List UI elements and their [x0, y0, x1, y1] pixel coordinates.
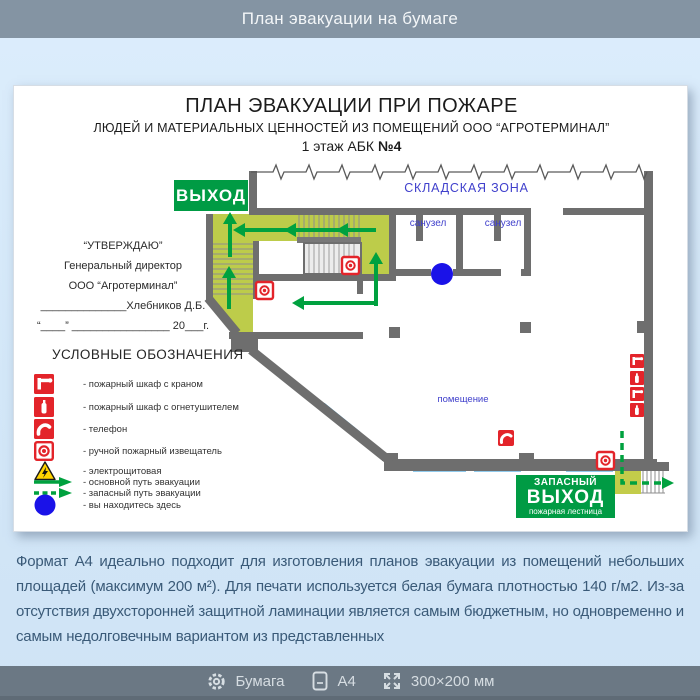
floor-plan-drawing	[169, 156, 689, 524]
spec-dimensions-label: 300×200 мм	[411, 673, 495, 690]
document-subtitle: ЛЮДЕЙ И МАТЕРИАЛЬНЫХ ЦЕННОСТЕЙ ИЗ ПОМЕЩЕ…	[14, 121, 689, 135]
exit-sign: ВЫХОД	[174, 180, 248, 211]
legend-label: - пожарный шкаф с краном	[83, 379, 203, 390]
corridor-fill	[212, 214, 641, 494]
manual-call-point-icon	[342, 257, 359, 274]
legend-label: - запасный путь эвакуации	[83, 488, 201, 499]
footer-bar: Бумага A4 300×200 мм	[0, 666, 700, 700]
document-title-block: ПЛАН ЭВАКУАЦИИ ПРИ ПОЖАРЕ ЛЮДЕЙ И МАТЕРИ…	[14, 95, 689, 154]
dimensions-icon	[382, 671, 402, 691]
spec-material: Бумага	[206, 671, 285, 692]
emergency-exit-line3: пожарная лестница	[516, 507, 615, 517]
legend-row: - ручной пожарный извещатель	[34, 441, 56, 461]
window-strips	[277, 371, 613, 467]
legend-label: - пожарный шкаф с огнетушителем	[83, 402, 239, 413]
page-title: План эвакуации на бумаге	[242, 9, 458, 29]
fire-cabinet-extinguisher-icon	[630, 371, 644, 385]
fire-cabinet-hose-icon	[34, 374, 56, 394]
legend-row: - телефон	[34, 419, 56, 439]
you-are-here-icon	[34, 494, 56, 516]
page-icon	[311, 671, 329, 691]
spec-format-label: A4	[338, 673, 356, 690]
building-number: №4	[378, 138, 401, 154]
exit-sign-label: ВЫХОД	[176, 186, 246, 206]
fire-cabinet-hose-icon	[630, 387, 644, 401]
diagonal-wall	[251, 350, 391, 462]
floor-text: 1 этаж АБК	[302, 138, 378, 154]
spec-material-label: Бумага	[236, 673, 285, 690]
you-are-here-marker	[431, 263, 453, 285]
legend-label: - вы находитесь здесь	[83, 500, 181, 511]
fire-cabinet-hose-icon	[630, 354, 644, 368]
legend-label: - электрощитовая	[83, 466, 161, 477]
telephone-icon	[498, 430, 514, 446]
fire-cabinet-extinguisher-icon	[630, 403, 644, 417]
evacuation-plan-sheet: ПЛАН ЭВАКУАЦИИ ПРИ ПОЖАРЕ ЛЮДЕЙ И МАТЕРИ…	[13, 85, 688, 532]
telephone-icon	[34, 419, 56, 439]
emergency-exit-sign: ЗАПАСНЫЙ ВЫХОД пожарная лестница	[516, 475, 615, 518]
legend-label: - телефон	[83, 424, 127, 435]
page: { "header": { "title": "План эвакуации н…	[0, 0, 700, 700]
legend-row: - вы находитесь здесь	[34, 493, 56, 517]
document-floor-line: 1 этаж АБК №4	[14, 138, 689, 154]
fire-cabinet-extinguisher-icon	[34, 397, 56, 417]
spec-dimensions: 300×200 мм	[382, 671, 495, 691]
manual-call-point-icon	[256, 282, 273, 299]
manual-call-point-icon	[34, 441, 56, 461]
bathroom-label: санузел	[398, 218, 458, 229]
legend-title: УСЛОВНЫЕ ОБОЗНАЧЕНИЯ	[52, 347, 252, 362]
wall-break-line	[251, 165, 647, 179]
room-label: помещение	[433, 394, 493, 405]
warehouse-zone-label: СКЛАДСКАЯ ЗОНА	[399, 181, 534, 195]
emergency-exit-line2: ВЫХОД	[516, 488, 615, 507]
gear-icon	[206, 671, 227, 692]
manual-call-point-icon	[597, 452, 614, 469]
description-paragraph: Формат А4 идеально подходит для изготовл…	[16, 549, 684, 649]
header-bar: План эвакуации на бумаге	[0, 0, 700, 38]
legend-label: - ручной пожарный извещатель	[83, 446, 222, 457]
legend-label: - основной путь эвакуации	[83, 477, 200, 488]
bathroom-label: санузел	[473, 218, 533, 229]
spec-format: A4	[311, 671, 356, 691]
legend-row: - пожарный шкаф с огнетушителем	[34, 397, 56, 417]
document-title: ПЛАН ЭВАКУАЦИИ ПРИ ПОЖАРЕ	[14, 95, 689, 118]
legend-row: - пожарный шкаф с краном	[34, 374, 56, 394]
